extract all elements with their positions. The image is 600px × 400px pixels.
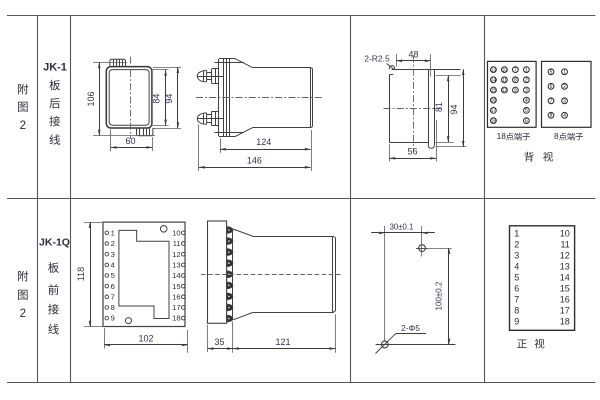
svg-text:1: 1 bbox=[111, 229, 115, 238]
svg-text:102: 102 bbox=[138, 333, 153, 343]
svg-text:15: 15 bbox=[560, 284, 570, 294]
svg-text:14: 14 bbox=[172, 271, 180, 280]
svg-text:10: 10 bbox=[502, 67, 508, 73]
svg-text:13: 13 bbox=[491, 67, 497, 73]
svg-text:146: 146 bbox=[247, 155, 262, 165]
svg-text:18: 18 bbox=[497, 131, 507, 141]
svg-text:2: 2 bbox=[525, 78, 528, 84]
svg-text:8: 8 bbox=[514, 306, 519, 316]
svg-text:17: 17 bbox=[560, 306, 570, 316]
svg-text:30±0.1: 30±0.1 bbox=[390, 222, 414, 231]
svg-text:JK-1Q: JK-1Q bbox=[39, 236, 70, 248]
svg-text:7: 7 bbox=[550, 99, 553, 105]
svg-text:106: 106 bbox=[86, 91, 96, 106]
svg-text:8: 8 bbox=[111, 303, 115, 312]
svg-text:10: 10 bbox=[172, 229, 180, 238]
svg-text:5: 5 bbox=[525, 108, 528, 114]
svg-text:1: 1 bbox=[563, 70, 566, 76]
svg-text:13: 13 bbox=[172, 260, 180, 269]
svg-text:JK-1: JK-1 bbox=[43, 62, 67, 74]
svg-text:6: 6 bbox=[525, 118, 528, 124]
svg-text:1: 1 bbox=[514, 229, 519, 239]
svg-text:3: 3 bbox=[514, 251, 519, 261]
svg-text:2-Φ5: 2-Φ5 bbox=[401, 323, 420, 333]
svg-text:14: 14 bbox=[560, 273, 570, 283]
svg-text:13: 13 bbox=[560, 262, 570, 272]
svg-text:17: 17 bbox=[172, 303, 180, 312]
svg-text:11: 11 bbox=[560, 240, 569, 250]
svg-text:15: 15 bbox=[172, 282, 180, 291]
svg-text:8: 8 bbox=[554, 131, 559, 141]
svg-text:9: 9 bbox=[111, 314, 115, 323]
svg-text:2: 2 bbox=[20, 308, 26, 320]
svg-text:100±0.2: 100±0.2 bbox=[435, 281, 444, 310]
svg-text:2: 2 bbox=[563, 84, 566, 90]
svg-text:6: 6 bbox=[514, 284, 519, 294]
svg-text:17: 17 bbox=[491, 108, 497, 114]
svg-text:3: 3 bbox=[111, 250, 115, 259]
svg-text:18: 18 bbox=[560, 317, 570, 327]
svg-text:6: 6 bbox=[550, 84, 553, 90]
svg-text:9: 9 bbox=[514, 88, 517, 94]
svg-text:1: 1 bbox=[525, 67, 528, 73]
svg-text:2: 2 bbox=[514, 240, 519, 250]
svg-text:7: 7 bbox=[514, 295, 519, 305]
svg-text:4: 4 bbox=[563, 113, 566, 119]
svg-text:4: 4 bbox=[111, 260, 115, 269]
svg-text:94: 94 bbox=[449, 104, 459, 114]
svg-text:4: 4 bbox=[525, 98, 528, 104]
svg-text:8: 8 bbox=[514, 78, 517, 84]
svg-text:60: 60 bbox=[125, 136, 135, 146]
svg-text:3: 3 bbox=[563, 99, 566, 105]
svg-text:7: 7 bbox=[514, 67, 517, 73]
svg-text:118: 118 bbox=[76, 267, 86, 281]
svg-text:11: 11 bbox=[173, 239, 181, 248]
svg-text:81: 81 bbox=[434, 102, 444, 112]
svg-text:18: 18 bbox=[491, 118, 497, 124]
svg-text:4: 4 bbox=[514, 262, 519, 272]
svg-text:10: 10 bbox=[560, 229, 570, 239]
svg-text:56: 56 bbox=[407, 147, 417, 157]
svg-text:84: 84 bbox=[152, 94, 162, 104]
svg-text:2: 2 bbox=[20, 120, 26, 132]
svg-text:16: 16 bbox=[491, 98, 497, 104]
svg-text:18: 18 bbox=[172, 314, 180, 323]
svg-text:14: 14 bbox=[491, 78, 497, 84]
svg-text:94: 94 bbox=[164, 94, 174, 104]
svg-text:12: 12 bbox=[172, 250, 180, 259]
svg-text:2: 2 bbox=[111, 239, 115, 248]
svg-text:6: 6 bbox=[111, 282, 115, 291]
svg-text:11: 11 bbox=[502, 78, 507, 84]
svg-text:5: 5 bbox=[550, 70, 553, 76]
svg-text:5: 5 bbox=[514, 273, 519, 283]
svg-text:12: 12 bbox=[560, 251, 570, 261]
svg-text:5: 5 bbox=[111, 271, 115, 280]
svg-text:9: 9 bbox=[514, 317, 519, 327]
svg-text:8: 8 bbox=[550, 113, 553, 119]
svg-text:124: 124 bbox=[256, 137, 271, 147]
svg-text:35: 35 bbox=[214, 337, 224, 347]
svg-text:15: 15 bbox=[491, 88, 497, 94]
svg-text:7: 7 bbox=[111, 292, 115, 301]
svg-text:16: 16 bbox=[560, 295, 570, 305]
svg-text:121: 121 bbox=[275, 337, 290, 347]
svg-text:16: 16 bbox=[172, 292, 180, 301]
svg-text:2-R2.5: 2-R2.5 bbox=[364, 54, 390, 64]
svg-text:3: 3 bbox=[525, 88, 528, 94]
svg-text:12: 12 bbox=[502, 88, 508, 94]
